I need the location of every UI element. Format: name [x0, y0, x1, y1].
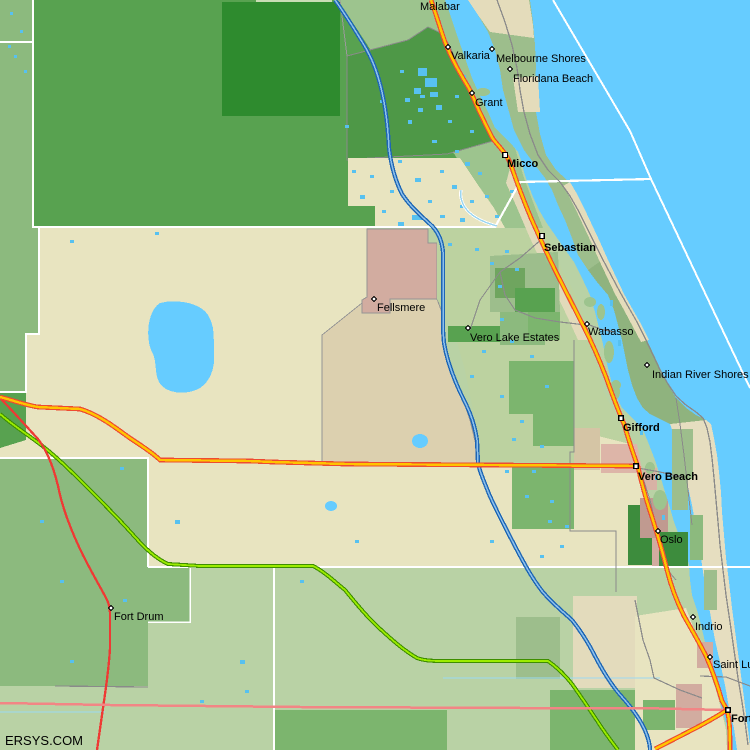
svg-text:Fellsmere: Fellsmere: [377, 302, 425, 314]
svg-text:Fort Drum: Fort Drum: [114, 611, 164, 623]
svg-text:Vero Beach: Vero Beach: [638, 471, 698, 483]
svg-text:Valkaria: Valkaria: [451, 50, 491, 62]
svg-text:Malabar: Malabar: [420, 1, 460, 13]
svg-text:Melbourne Shores: Melbourne Shores: [496, 53, 586, 65]
svg-text:Indian River Shores: Indian River Shores: [652, 369, 749, 381]
svg-text:Gifford: Gifford: [623, 422, 660, 434]
svg-text:Fort P: Fort P: [731, 713, 750, 725]
svg-text:Wabasso: Wabasso: [588, 326, 633, 338]
svg-text:Vero Lake Estates: Vero Lake Estates: [470, 332, 560, 344]
svg-text:Sebastian: Sebastian: [544, 242, 596, 254]
svg-text:Indrio: Indrio: [695, 621, 723, 633]
svg-text:Saint Luc: Saint Luc: [713, 659, 750, 671]
svg-text:Micco: Micco: [507, 158, 538, 170]
svg-text:Floridana Beach: Floridana Beach: [513, 73, 593, 85]
svg-text:ERSYS.COM: ERSYS.COM: [5, 733, 83, 748]
svg-text:Grant: Grant: [475, 97, 503, 109]
svg-text:Oslo: Oslo: [660, 534, 683, 546]
